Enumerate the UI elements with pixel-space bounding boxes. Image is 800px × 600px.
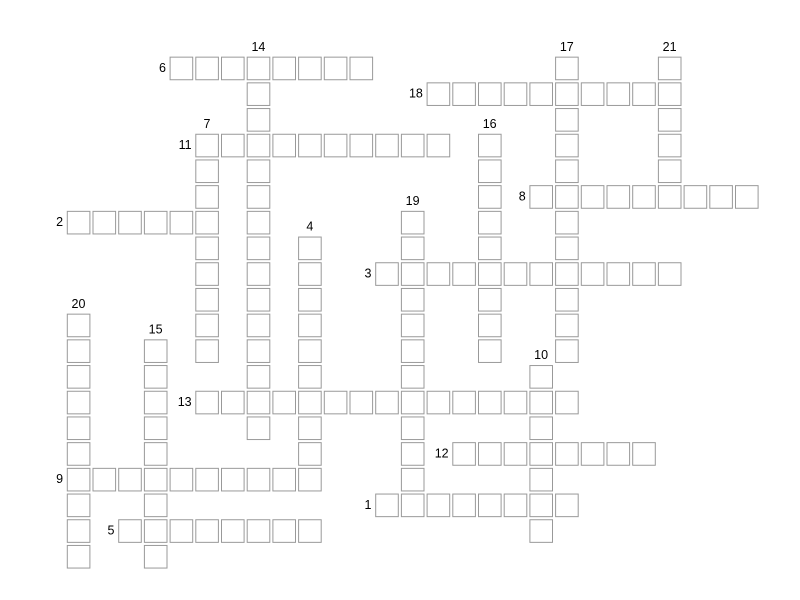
svg-text:21: 21 [663, 40, 677, 54]
svg-text:18: 18 [409, 87, 423, 101]
svg-text:14: 14 [251, 40, 265, 54]
svg-text:16: 16 [483, 117, 497, 131]
svg-text:11: 11 [179, 138, 192, 152]
svg-text:19: 19 [406, 194, 420, 208]
svg-text:1: 1 [365, 498, 372, 512]
svg-text:6: 6 [159, 61, 166, 75]
svg-text:15: 15 [149, 322, 163, 336]
svg-text:4: 4 [306, 220, 313, 234]
svg-text:9: 9 [56, 472, 63, 486]
svg-text:2: 2 [56, 215, 63, 229]
svg-text:17: 17 [560, 40, 574, 54]
svg-text:8: 8 [519, 189, 526, 203]
svg-text:12: 12 [435, 446, 449, 460]
svg-text:5: 5 [108, 524, 115, 538]
svg-text:3: 3 [365, 267, 372, 281]
svg-text:13: 13 [178, 395, 192, 409]
svg-text:10: 10 [534, 348, 548, 362]
svg-text:20: 20 [72, 297, 86, 311]
svg-text:7: 7 [204, 117, 211, 131]
